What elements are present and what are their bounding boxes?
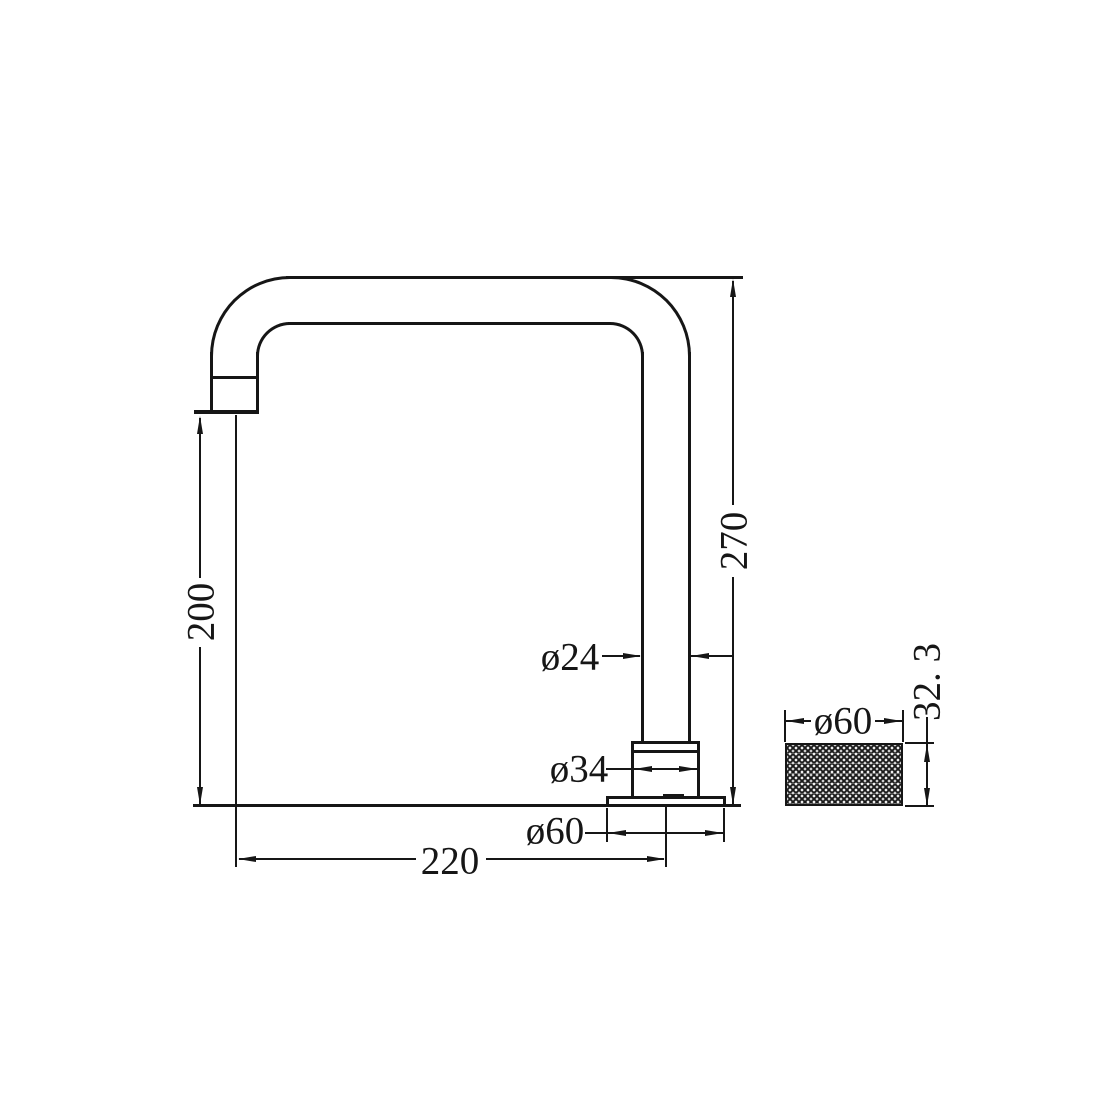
dim-32-3-ext-top bbox=[905, 742, 934, 744]
riser-outer-line bbox=[688, 352, 691, 743]
pipe-top-inner-line bbox=[288, 322, 611, 325]
dim-200-label: 200 bbox=[182, 583, 221, 642]
dim-dia34-arrow-left bbox=[634, 766, 652, 772]
dim-32-3-arrow-down bbox=[924, 788, 930, 806]
knurled-handle-detail bbox=[785, 743, 903, 806]
nozzle-bottom-edge bbox=[194, 410, 259, 415]
dim-dia24-label: ø24 bbox=[541, 638, 600, 677]
dim-270-line-lower bbox=[732, 577, 734, 804]
dim-dia60-handle-arrow-left bbox=[786, 718, 804, 724]
dim-dia60-handle-arrow-right bbox=[884, 718, 902, 724]
dim-dia34-label: ø34 bbox=[550, 750, 609, 789]
dim-dia60-base-arrow-left bbox=[608, 830, 626, 836]
spout-drop-outer-line bbox=[210, 352, 213, 378]
dim-200-line-lower bbox=[199, 647, 201, 804]
technical-drawing-canvas: 270 200 220 ø24 ø34 bbox=[0, 0, 1109, 1109]
dim-dia60-base-ext-right bbox=[723, 808, 725, 842]
dim-220-arrow-left bbox=[238, 856, 256, 862]
dim-200-arrow-down bbox=[197, 787, 203, 805]
shank-cap-line bbox=[633, 750, 697, 753]
dim-dia60-handle-label: ø60 bbox=[814, 702, 873, 741]
dim-dia24-arrow-left bbox=[623, 653, 641, 659]
baseline bbox=[193, 804, 741, 807]
dim-dia34-arrow-right bbox=[679, 766, 697, 772]
dim-32-3-ext-bottom bbox=[905, 805, 934, 807]
spout-nozzle bbox=[210, 376, 259, 413]
dim-dia60-handle-ext-left bbox=[784, 710, 786, 742]
dim-dia60-base-label: ø60 bbox=[526, 812, 585, 851]
pipe-top-outer-line bbox=[286, 276, 743, 279]
dim-220-ext-left bbox=[235, 415, 237, 867]
dim-200-arrow-up bbox=[197, 416, 203, 434]
dim-dia60-handle-ext-right bbox=[902, 710, 904, 742]
dim-220-ext-right bbox=[665, 807, 667, 867]
dim-220-arrow-right bbox=[647, 856, 665, 862]
flange-center-notch bbox=[663, 794, 684, 797]
dim-270-line-upper bbox=[732, 281, 734, 505]
dim-dia60-base-line bbox=[585, 832, 723, 834]
riser-inner-line bbox=[641, 352, 644, 743]
dim-32-3-label: 32. 3 bbox=[908, 643, 947, 721]
dim-270-arrow-up bbox=[730, 279, 736, 297]
dim-32-3-arrow-up bbox=[924, 744, 930, 762]
dim-200-line-upper bbox=[199, 418, 201, 578]
dim-270-arrow-down bbox=[730, 787, 736, 805]
dim-220-label: 220 bbox=[421, 842, 480, 881]
dim-dia60-base-arrow-right bbox=[705, 830, 723, 836]
spout-drop-inner-line bbox=[256, 352, 259, 378]
dim-220-line-left bbox=[239, 858, 416, 860]
dim-270-label: 270 bbox=[715, 512, 754, 571]
dim-220-line-right bbox=[486, 858, 664, 860]
dim-dia24-arrow-right bbox=[691, 653, 709, 659]
dim-dia60-base-ext-left bbox=[606, 808, 608, 842]
